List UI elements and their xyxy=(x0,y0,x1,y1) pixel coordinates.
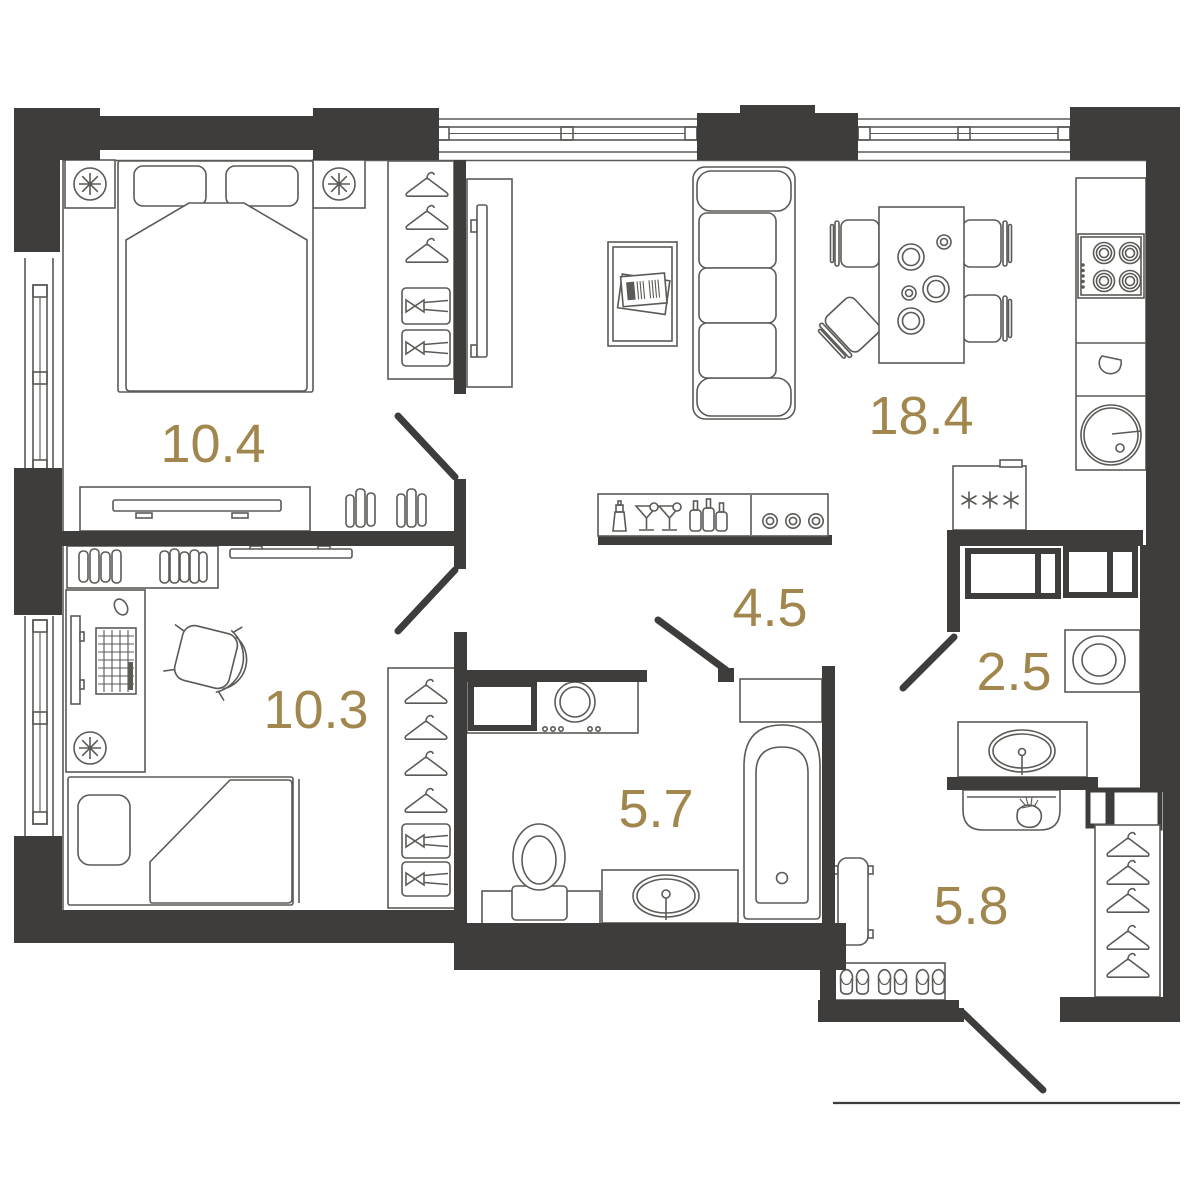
cup-icon xyxy=(902,286,916,300)
tv-unit xyxy=(467,179,512,387)
single-bed xyxy=(68,777,299,905)
living-kitchen-furniture xyxy=(467,167,1146,530)
slipper-icon xyxy=(933,970,945,994)
blanket xyxy=(126,203,307,391)
area-label-entrance: 5.8 xyxy=(933,876,1008,936)
wall-segment xyxy=(14,468,62,615)
tv-icon xyxy=(113,500,281,511)
wall-segment xyxy=(62,531,466,546)
wall-segment xyxy=(454,923,846,970)
wall-segment xyxy=(947,530,1143,546)
area-label-living-kitchen: 18.4 xyxy=(868,386,973,446)
wall-segment xyxy=(1060,997,1180,1022)
wall-segment xyxy=(1140,545,1180,792)
dining-table xyxy=(879,207,964,363)
dining-chair xyxy=(815,294,883,361)
slipper-icon xyxy=(917,970,929,994)
bathtub xyxy=(740,679,822,919)
kitchen-sink xyxy=(1081,405,1141,465)
wall-cabinets xyxy=(968,549,1135,596)
door-swing-wc xyxy=(903,637,954,688)
wall-segment xyxy=(460,670,647,682)
slipper-icon xyxy=(841,970,853,994)
entry-wardrobe xyxy=(1088,790,1160,997)
slipper-icon xyxy=(879,970,891,994)
window-left-bedroom-main xyxy=(25,258,53,472)
door-swing-entrance xyxy=(962,1012,1043,1090)
wall-segment xyxy=(14,108,60,252)
bedroom-main-furniture xyxy=(65,160,454,531)
drawer xyxy=(402,862,450,896)
wall-tv xyxy=(230,546,352,558)
slipper-icon xyxy=(857,970,869,994)
door-swing-bedroom-main xyxy=(398,416,455,477)
dining-chair xyxy=(963,220,1012,267)
door-swing-bathroom xyxy=(658,620,726,670)
floor-plan-canvas: 10.4 18.4 10.3 4.5 5.7 2.5 5.8 xyxy=(0,0,1193,1193)
wall-segment xyxy=(100,116,315,150)
wardrobe-main xyxy=(388,161,454,379)
toilet xyxy=(482,824,600,924)
window-top-kitchen xyxy=(858,119,1070,152)
wall-segment xyxy=(1146,158,1180,547)
dining-chair xyxy=(831,220,880,267)
plate-icon xyxy=(898,308,924,334)
drawer xyxy=(402,330,450,366)
plate-icon xyxy=(898,244,924,270)
wall-segment xyxy=(947,777,1098,790)
wall-segment xyxy=(313,108,439,160)
wardrobe-second xyxy=(388,668,460,908)
wall-segment xyxy=(14,836,62,926)
slipper-shelf xyxy=(833,963,945,1000)
area-label-bedroom-main: 10.4 xyxy=(160,414,265,474)
dining-set xyxy=(815,207,1012,363)
bookshelf xyxy=(67,546,218,588)
wall-segment xyxy=(14,910,466,943)
tv-dresser xyxy=(80,487,310,531)
fridge xyxy=(953,460,1026,530)
pillow xyxy=(226,166,298,206)
floor-plan: 10.4 18.4 10.3 4.5 5.7 2.5 5.8 xyxy=(0,0,1193,1193)
top-load-washer xyxy=(1065,630,1140,692)
dining-chair xyxy=(963,295,1012,342)
laundry-counter xyxy=(467,679,638,733)
pillow xyxy=(78,795,130,865)
cooktop xyxy=(1078,234,1144,298)
drawer xyxy=(402,288,450,324)
console-table xyxy=(963,790,1060,830)
wall-segment xyxy=(1070,107,1180,160)
sofa-cushion xyxy=(699,268,776,323)
kitchen-counter xyxy=(1076,178,1146,470)
door-swing-bedroom-second xyxy=(398,570,455,631)
window-left-bedroom-second xyxy=(25,616,53,836)
double-bed xyxy=(118,161,313,392)
washing-machine-icon xyxy=(471,684,534,728)
sofa-cushion xyxy=(699,213,776,268)
wall-segment xyxy=(822,666,835,962)
wall-segment xyxy=(454,479,466,569)
drawer xyxy=(402,824,450,858)
wall-segment xyxy=(697,113,858,160)
sofa-armrest xyxy=(697,378,791,416)
cup-icon xyxy=(937,235,951,249)
sofa xyxy=(693,167,795,419)
magazine xyxy=(618,273,670,314)
keyboard-icon xyxy=(96,628,136,694)
area-label-bathroom: 5.7 xyxy=(618,779,693,839)
sink-vanity xyxy=(958,722,1087,777)
window-top-living xyxy=(437,119,697,152)
desk-chair xyxy=(160,611,255,704)
sink-vanity xyxy=(602,870,738,923)
wall-segment xyxy=(454,160,466,394)
area-label-bedroom-second: 10.3 xyxy=(263,680,368,740)
area-label-hallway: 4.5 xyxy=(732,578,807,638)
room-area-labels: 10.4 18.4 10.3 4.5 5.7 2.5 5.8 xyxy=(160,386,1051,936)
tv-icon xyxy=(230,549,352,558)
wall-segment xyxy=(740,105,815,115)
monitor-icon xyxy=(71,616,80,704)
hallway-bar-console xyxy=(598,494,832,545)
wall-segment xyxy=(818,1000,959,1022)
pillow xyxy=(134,166,206,206)
slipper-icon xyxy=(895,970,907,994)
area-label-wc: 2.5 xyxy=(976,642,1051,702)
books xyxy=(346,489,426,527)
tv-icon xyxy=(477,205,487,357)
sofa-armrest xyxy=(697,171,791,211)
plate-icon xyxy=(923,276,949,302)
sofa-cushion xyxy=(699,323,776,378)
wall-segment xyxy=(1163,790,1180,1002)
wall-segment xyxy=(947,543,960,632)
coffee-table xyxy=(608,242,677,346)
